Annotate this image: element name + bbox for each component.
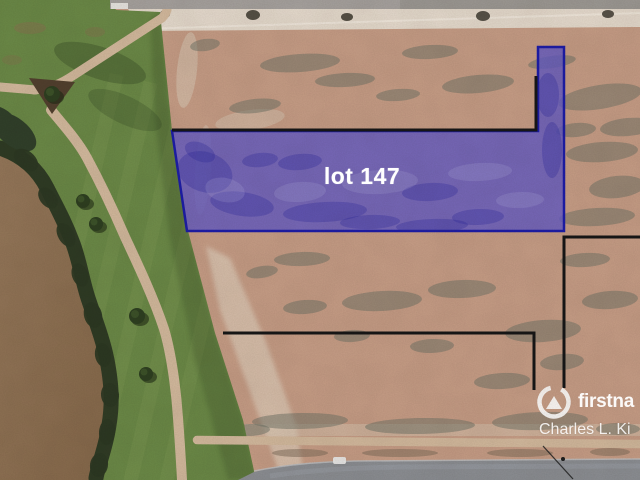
agent-name: Charles L. Ki [539,421,631,439]
aerial-photo-canvas [0,0,640,480]
logo-text: firstna [578,392,634,412]
photo-grain-coarse [0,0,640,480]
aerial-photo: lot 147 firstna Charles L. Ki [0,0,640,480]
lot-label: lot 147 [316,165,408,188]
